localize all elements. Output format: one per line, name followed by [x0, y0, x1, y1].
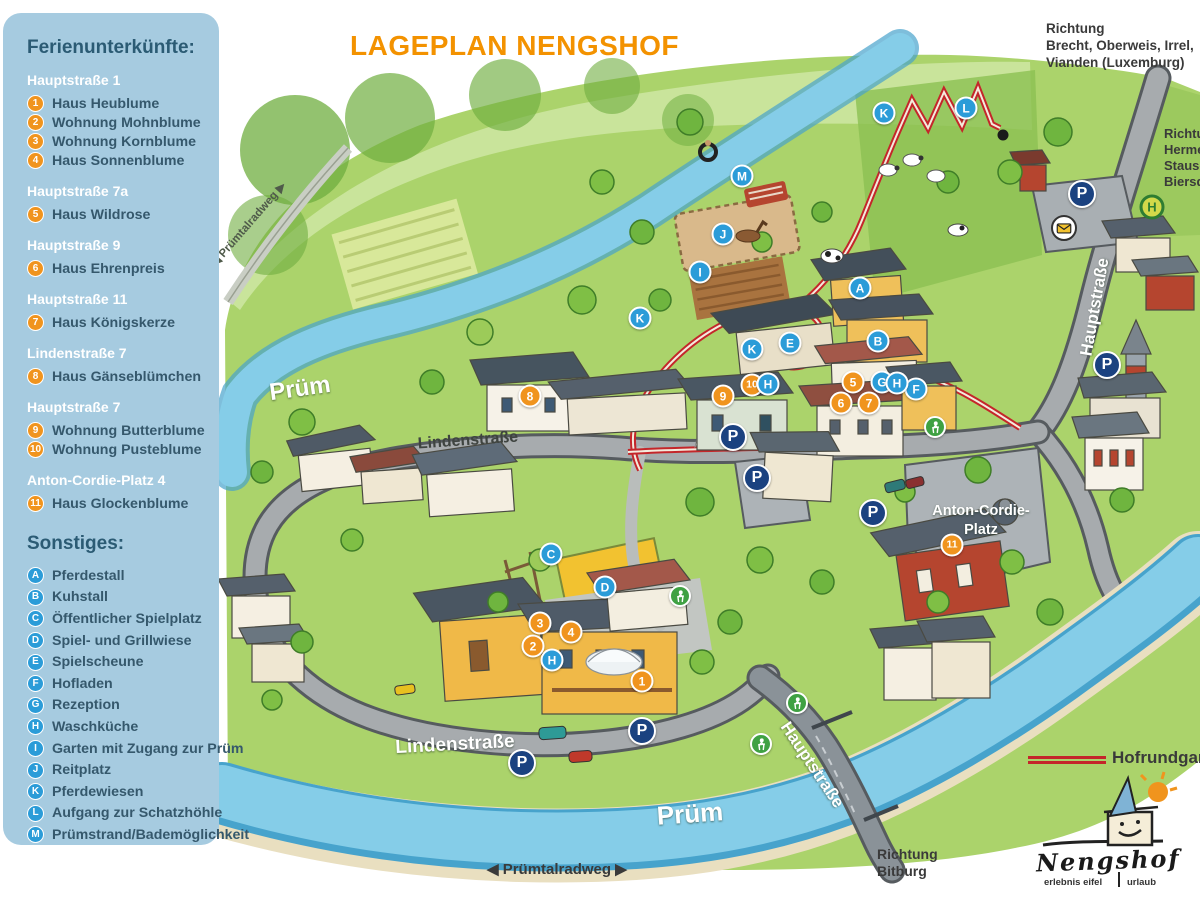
pedestrian-icon [786, 692, 808, 714]
map-text-label: Prüm [656, 796, 724, 832]
letter-marker-E: E [779, 332, 802, 355]
letter-badge-icon: M [27, 826, 44, 843]
legend-item-label: Prümstrand/Bademöglichkeit [52, 827, 249, 843]
legend-item-label: Garten mit Zugang zur Prüm [52, 741, 244, 757]
letter-badge-icon: G [27, 697, 44, 714]
sidebar-street-header: Hauptstraße 7 [27, 399, 209, 415]
number-badge-icon: 3 [27, 133, 44, 150]
letter-badge-icon: A [27, 567, 44, 584]
letter-marker-K: K [629, 307, 652, 330]
legend-item-m: MPrümstrand/Bademöglichkeit [27, 824, 209, 846]
legend-item-8: 8Haus Gänseblümchen [27, 367, 209, 386]
legend-item-label: Rezeption [52, 697, 120, 713]
num-marker-8: 8 [519, 385, 542, 408]
map-text-label: Platz [964, 522, 998, 538]
letter-marker-H: H [886, 372, 909, 395]
sidebar-groups: Hauptstraße 11Haus Heublume2Wohnung Mohn… [27, 72, 209, 513]
legend-item-label: Reitplatz [52, 762, 111, 778]
num-marker-1: 1 [631, 670, 654, 693]
legend-item-label: Pferdestall [52, 568, 125, 584]
legend-item-5: 5Haus Wildrose [27, 205, 209, 224]
legend-item-label: Wohnung Kornblume [52, 134, 196, 150]
legend-item-label: Spiel- und Grillwiese [52, 633, 192, 649]
letter-marker-J: J [712, 223, 735, 246]
legend-item-a: APferdestall [27, 565, 209, 587]
letter-marker-B: B [867, 330, 890, 353]
legend-item-d: DSpiel- und Grillwiese [27, 630, 209, 652]
legend-item-k: KPferdewiesen [27, 781, 209, 803]
number-badge-icon: 11 [27, 495, 44, 512]
postbox-icon [1051, 215, 1077, 241]
cave-entrance-dot [998, 130, 1009, 141]
park-marker-P: P [1093, 351, 1121, 379]
legend-item-label: Haus Glockenblume [52, 496, 188, 512]
lageplan-page: Ferienunterkünfte: Hauptstraße 11Haus He… [0, 0, 1200, 900]
letter-badge-icon: E [27, 654, 44, 671]
legend-item-11: 11Haus Glockenblume [27, 494, 209, 513]
direction-bitburg: Richtung Bitburg [877, 846, 938, 880]
sidebar-street-header: Hauptstraße 11 [27, 291, 209, 307]
sidebar-street-header: Hauptstraße 9 [27, 237, 209, 253]
legend-item-label: Spielscheune [52, 654, 143, 670]
number-badge-icon: 4 [27, 152, 44, 169]
legend-item-label: Haus Heublume [52, 96, 159, 112]
bike-path-label-bottom: ◀ Prümtalradweg ▶ [487, 860, 627, 878]
pedestrian-icon [924, 416, 946, 438]
num-marker-7: 7 [858, 392, 881, 415]
number-badge-icon: 10 [27, 441, 44, 458]
legend-item-1: 1Haus Heublume [27, 94, 209, 113]
number-badge-icon: 7 [27, 314, 44, 331]
num-marker-4: 4 [560, 621, 583, 644]
legend-item-3: 3Wohnung Kornblume [27, 132, 209, 151]
direction-right: Richtung Hermesdorf, Stausee, Biersdorf [1164, 126, 1200, 190]
legend-item-9: 9Wohnung Butterblume [27, 421, 209, 440]
letter-marker-M: M [731, 165, 754, 188]
page-title: LAGEPLAN NENGSHOF [350, 30, 660, 62]
legend-item-label: Hofladen [52, 676, 113, 692]
letter-marker-D: D [594, 576, 617, 599]
park-marker-P: P [628, 717, 656, 745]
sidebar-street-header: Hauptstraße 1 [27, 72, 209, 88]
legend-item-label: Pferdewiesen [52, 784, 143, 800]
legend-other-title: Sonstiges: [27, 533, 209, 555]
bus-stop-icon: H [1140, 195, 1165, 220]
number-badge-icon: 8 [27, 368, 44, 385]
logo-tagline-left: erlebnis eifel [1044, 877, 1102, 888]
num-marker-9: 9 [712, 385, 735, 408]
route-legend-label: Hofrundgang [1112, 748, 1200, 768]
number-badge-icon: 9 [27, 422, 44, 439]
legend-item-label: Haus Sonnenblume [52, 153, 184, 169]
legend-item-label: Haus Ehrenpreis [52, 261, 165, 277]
number-badge-icon: 2 [27, 114, 44, 131]
letter-marker-A: A [849, 277, 872, 300]
park-marker-P: P [743, 464, 771, 492]
letter-badge-icon: D [27, 632, 44, 649]
letter-marker-H: H [541, 649, 564, 672]
letter-badge-icon: J [27, 762, 44, 779]
park-marker-P: P [859, 499, 887, 527]
legend-item-10: 10Wohnung Pusteblume [27, 440, 209, 459]
legend-item-7: 7Haus Königskerze [27, 313, 209, 332]
letter-marker-I: I [689, 261, 712, 284]
num-marker-11: 11 [941, 534, 964, 557]
legend-item-label: Haus Königskerze [52, 315, 175, 331]
sidebar-street-header: Hauptstraße 7a [27, 183, 209, 199]
park-marker-P: P [1068, 180, 1096, 208]
letter-badge-icon: L [27, 805, 44, 822]
letter-marker-C: C [540, 543, 563, 566]
sidebar-street-header: Lindenstraße 7 [27, 345, 209, 361]
number-badge-icon: 1 [27, 95, 44, 112]
legend-item-label: Öffentlicher Spielplatz [52, 611, 202, 627]
legend-item-h: HWaschküche [27, 716, 209, 738]
legend-item-label: Haus Wildrose [52, 207, 150, 223]
legend-item-label: Wohnung Butterblume [52, 423, 205, 439]
legend-item-2: 2Wohnung Mohnblume [27, 113, 209, 132]
park-marker-P: P [719, 423, 747, 451]
num-marker-3: 3 [529, 612, 552, 635]
legend-item-b: BKuhstall [27, 587, 209, 609]
legend-item-label: Wohnung Mohnblume [52, 115, 201, 131]
pedestrian-icon [750, 733, 772, 755]
route-legend-line [1028, 756, 1106, 759]
num-marker-6: 6 [830, 392, 853, 415]
letter-badge-icon: I [27, 740, 44, 757]
logo-divider [1118, 872, 1120, 887]
legend-item-label: Wohnung Pusteblume [52, 442, 202, 458]
legend-item-i: IGarten mit Zugang zur Prüm [27, 738, 209, 760]
letter-marker-K: K [741, 338, 764, 361]
logo-wordmark: Nengshof [1036, 843, 1182, 877]
letter-badge-icon: H [27, 718, 44, 735]
legend-item-e: ESpielscheune [27, 651, 209, 673]
num-marker-5: 5 [842, 371, 865, 394]
letter-badge-icon: B [27, 589, 44, 606]
letter-badge-icon: C [27, 610, 44, 627]
pedestrian-icon [669, 585, 691, 607]
letter-badge-icon: F [27, 675, 44, 692]
legend-item-label: Haus Gänseblümchen [52, 369, 201, 385]
sidebar-others: APferdestallBKuhstallCÖffentlicher Spiel… [27, 565, 209, 846]
legend-item-c: CÖffentlicher Spielplatz [27, 608, 209, 630]
legend-item-j: JReitplatz [27, 759, 209, 781]
direction-top-right: Richtung Brecht, Oberweis, Irrel, Viande… [1046, 20, 1194, 71]
letter-marker-L: L [955, 97, 978, 120]
park-marker-P: P [508, 749, 536, 777]
legend-item-4: 4Haus Sonnenblume [27, 151, 209, 170]
letter-marker-K: K [873, 102, 896, 125]
route-legend-line [1028, 761, 1106, 764]
legend-item-l: LAufgang zur Schatzhöhle [27, 803, 209, 825]
legend-title: Ferienunterkünfte: [27, 37, 209, 59]
number-badge-icon: 6 [27, 260, 44, 277]
sidebar-street-header: Anton-Cordie-Platz 4 [27, 472, 209, 488]
map-text-label: Anton-Cordie- [932, 503, 1029, 519]
legend-sidebar: Ferienunterkünfte: Hauptstraße 11Haus He… [3, 13, 219, 845]
legend-item-label: Kuhstall [52, 589, 108, 605]
letter-marker-H: H [757, 373, 780, 396]
letter-badge-icon: K [27, 783, 44, 800]
legend-item-label: Aufgang zur Schatzhöhle [52, 805, 222, 821]
logo-tagline-right: urlaub [1127, 877, 1156, 888]
legend-item-g: GRezeption [27, 695, 209, 717]
legend-item-6: 6Haus Ehrenpreis [27, 259, 209, 278]
number-badge-icon: 5 [27, 206, 44, 223]
legend-item-label: Waschküche [52, 719, 138, 735]
legend-item-f: FHofladen [27, 673, 209, 695]
